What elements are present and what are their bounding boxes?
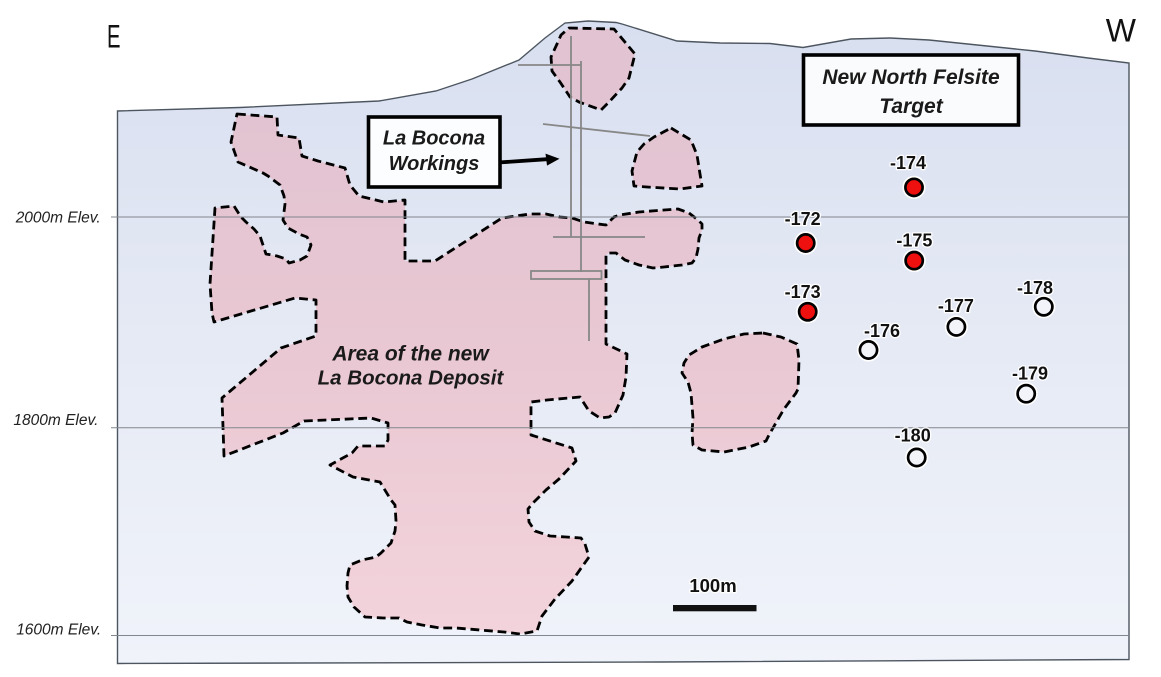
svg-text:Target: Target [879, 95, 943, 118]
svg-text:-172: -172 [785, 209, 821, 229]
svg-text:-175: -175 [896, 231, 932, 251]
svg-text:-176: -176 [864, 321, 900, 341]
svg-text:-179: -179 [1012, 364, 1048, 384]
svg-text:-180: -180 [895, 426, 931, 446]
svg-text:2000m Elev.: 2000m Elev. [15, 210, 101, 227]
svg-text:-173: -173 [785, 282, 821, 302]
svg-text:Area of the new: Area of the new [331, 342, 490, 365]
svg-text:-178: -178 [1017, 278, 1053, 298]
svg-text:W: W [1106, 13, 1137, 49]
svg-text:New North Felsite: New North Felsite [822, 66, 1000, 89]
svg-text:1600m Elev.: 1600m Elev. [16, 621, 101, 638]
svg-text:La Bocona Deposit: La Bocona Deposit [318, 366, 505, 389]
svg-text:1800m Elev.: 1800m Elev. [13, 412, 98, 429]
svg-text:-174: -174 [890, 153, 926, 173]
svg-text:La Bocona: La Bocona [383, 128, 485, 150]
svg-text:100m: 100m [689, 575, 736, 596]
svg-text:Workings: Workings [389, 153, 480, 175]
svg-text:-177: -177 [938, 296, 974, 316]
svg-text:E: E [107, 19, 121, 55]
